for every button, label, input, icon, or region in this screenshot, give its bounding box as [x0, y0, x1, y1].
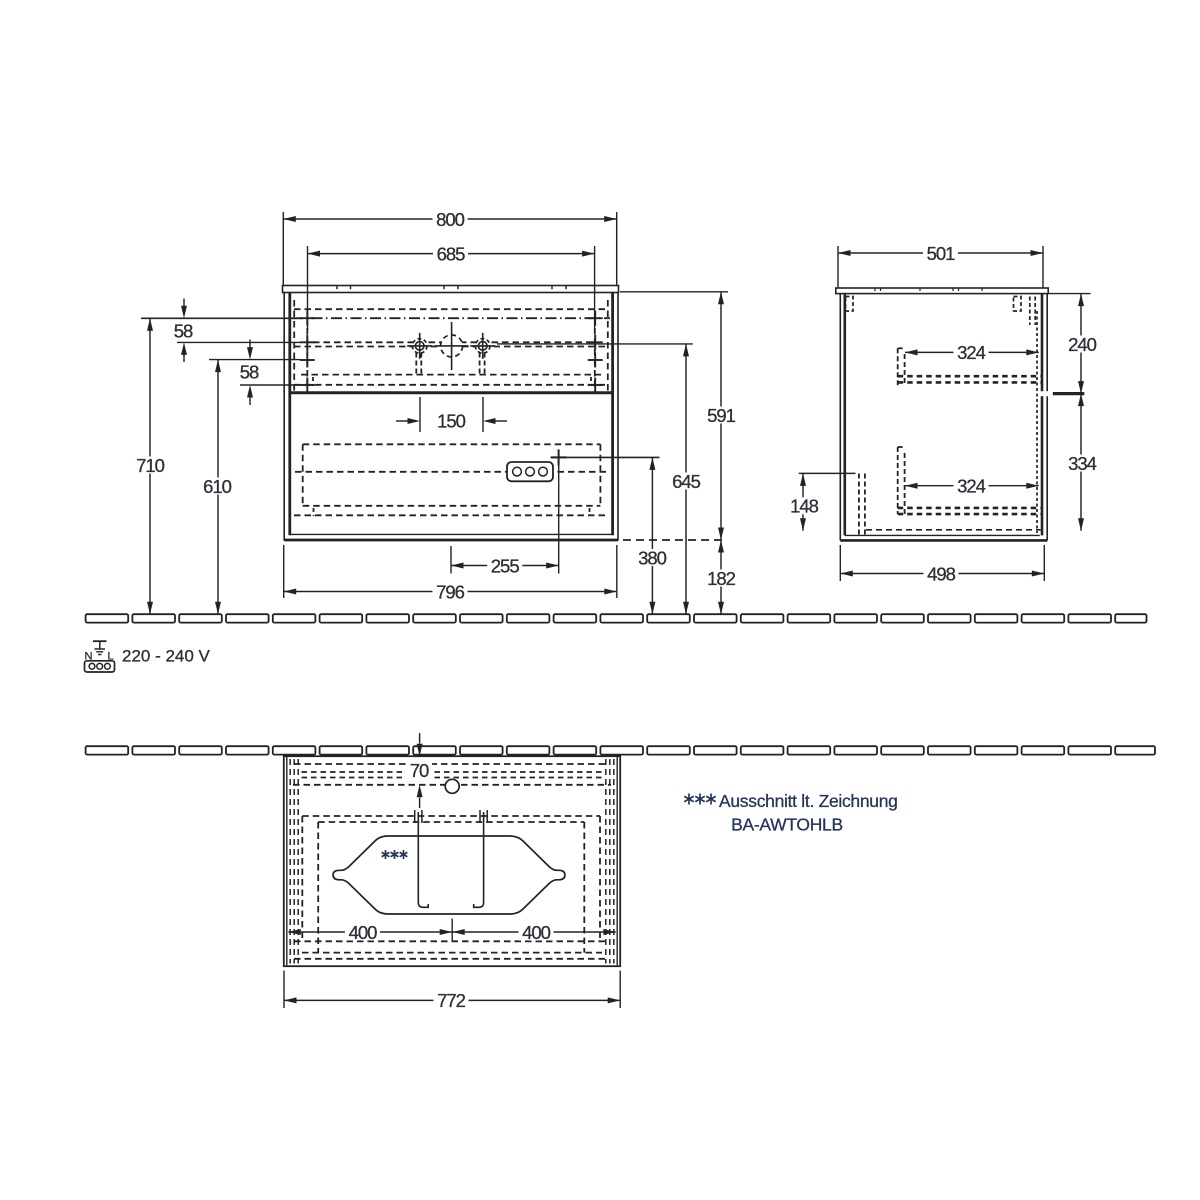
svg-text:501: 501	[927, 243, 956, 264]
svg-text:324: 324	[957, 476, 986, 497]
svg-text:58: 58	[240, 362, 259, 383]
svg-text:240: 240	[1068, 334, 1097, 355]
svg-text:182: 182	[707, 568, 736, 589]
svg-text:610: 610	[203, 476, 232, 497]
svg-text:772: 772	[437, 990, 466, 1011]
svg-text:BA-AWTOHLB: BA-AWTOHLB	[731, 815, 843, 835]
svg-text:220 - 240 V: 220 - 240 V	[122, 647, 211, 666]
svg-text:685: 685	[437, 243, 466, 264]
svg-text:710: 710	[136, 455, 165, 476]
svg-text:58: 58	[174, 321, 193, 342]
svg-text:148: 148	[790, 496, 819, 517]
svg-text:324: 324	[957, 342, 986, 363]
svg-text:796: 796	[436, 581, 465, 602]
svg-text:Ausschnitt lt. Zeichnung: Ausschnitt lt. Zeichnung	[719, 791, 898, 811]
svg-text:645: 645	[672, 471, 701, 492]
svg-text:400: 400	[349, 922, 378, 943]
svg-text:400: 400	[522, 922, 551, 943]
svg-text:591: 591	[707, 405, 736, 426]
svg-text:498: 498	[927, 563, 956, 584]
svg-text:334: 334	[1068, 453, 1097, 474]
svg-text:70: 70	[410, 760, 429, 781]
svg-text:150: 150	[437, 411, 466, 432]
svg-text:800: 800	[436, 209, 465, 230]
svg-text:255: 255	[491, 555, 520, 576]
svg-text:380: 380	[638, 547, 667, 568]
